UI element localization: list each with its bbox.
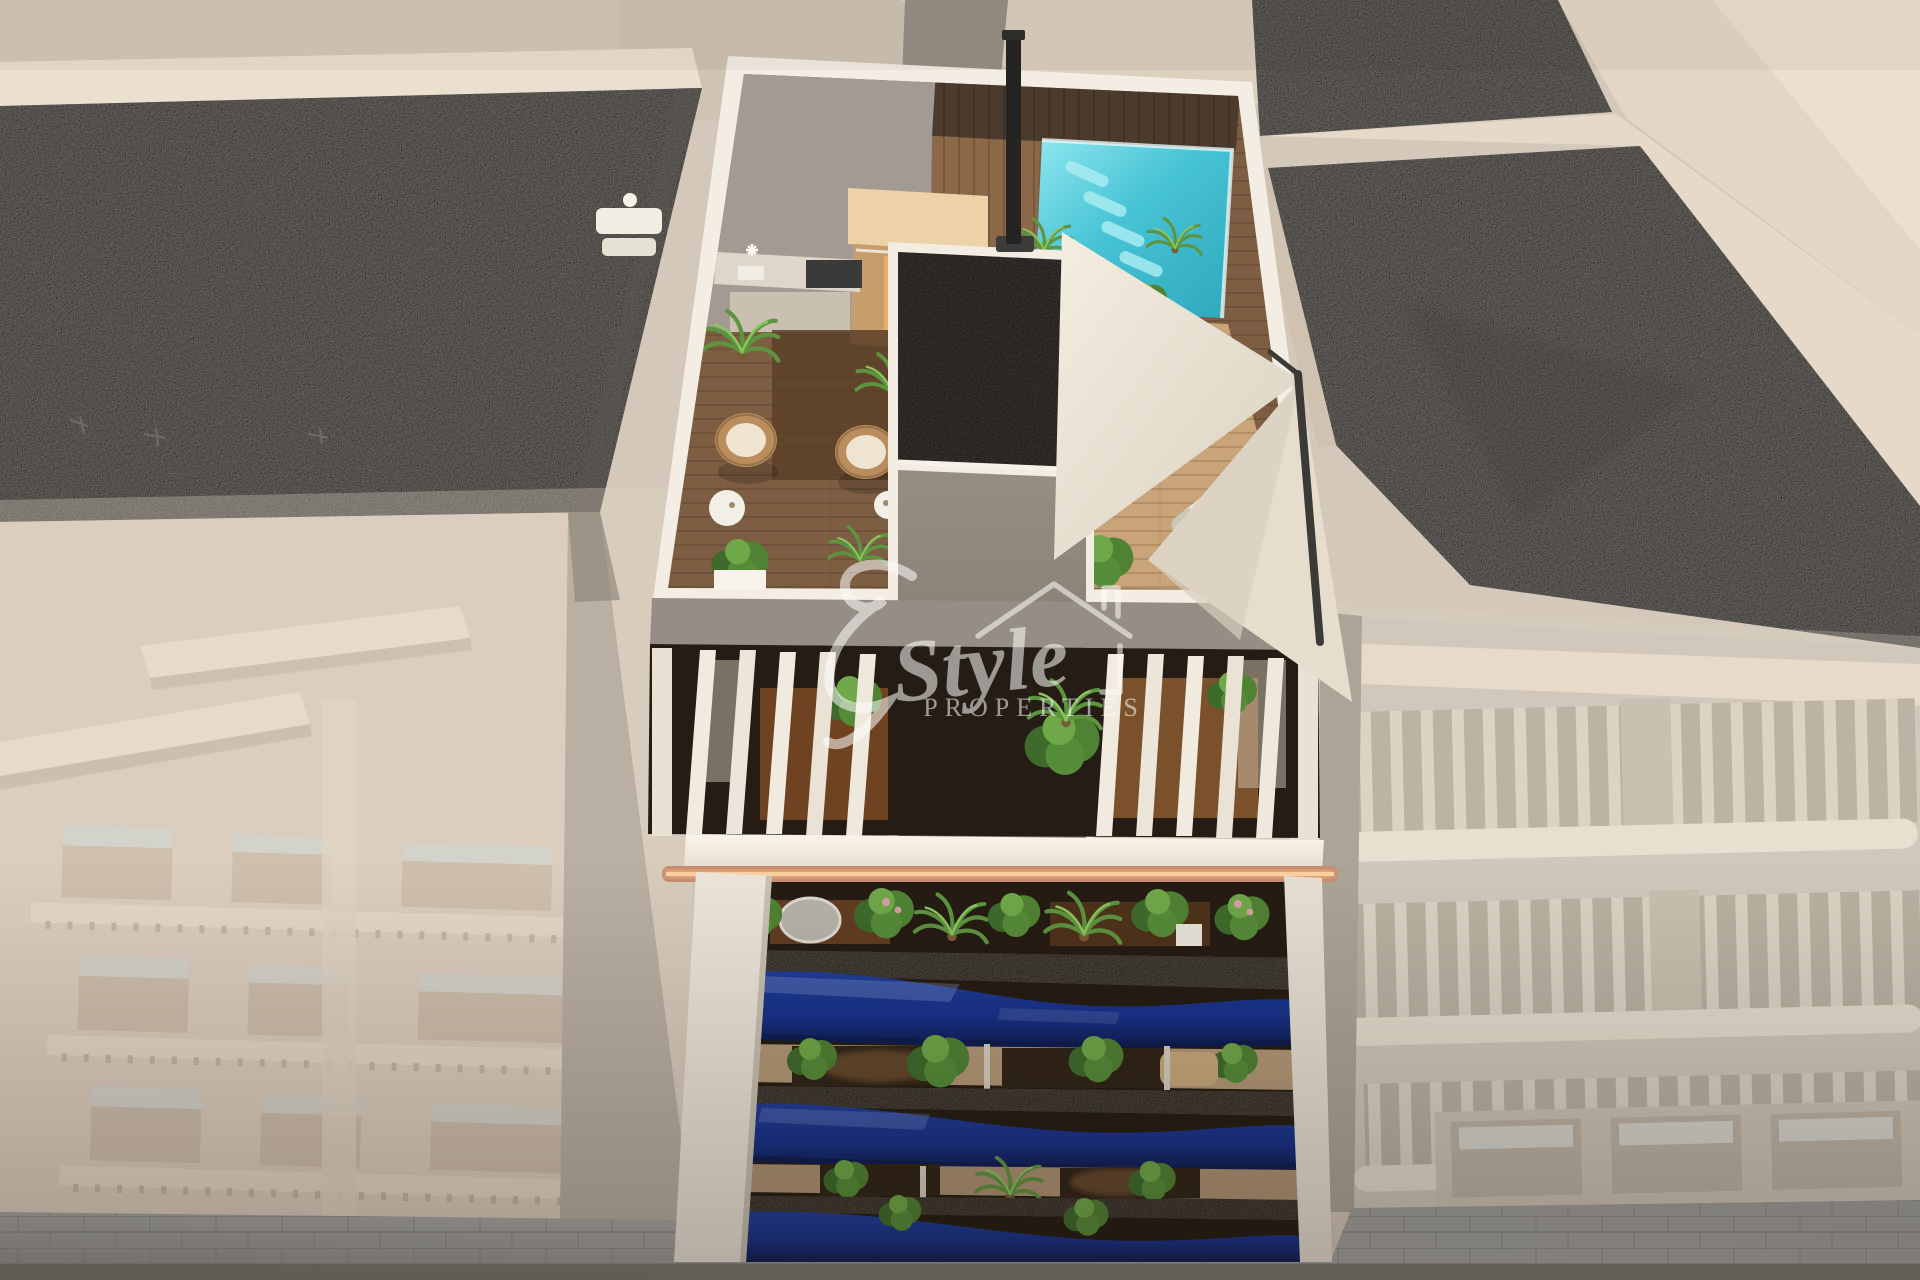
architectural-render: Style PROPERTIES [0,0,1920,1280]
louver-end-right [1298,652,1318,838]
watermark-caps-text: PROPERTIES [923,693,1145,722]
louver-end-left [652,648,672,836]
egg-chair-2 [835,425,897,479]
scene: Style PROPERTIES [0,0,1920,1280]
grill [806,260,862,288]
egg-chair-1 [715,413,777,467]
bottom-vignette [0,860,1920,1280]
left-neighbour-roof [0,48,702,522]
top-shade [0,0,1920,70]
sink [738,266,764,280]
side-table-1 [709,490,745,526]
